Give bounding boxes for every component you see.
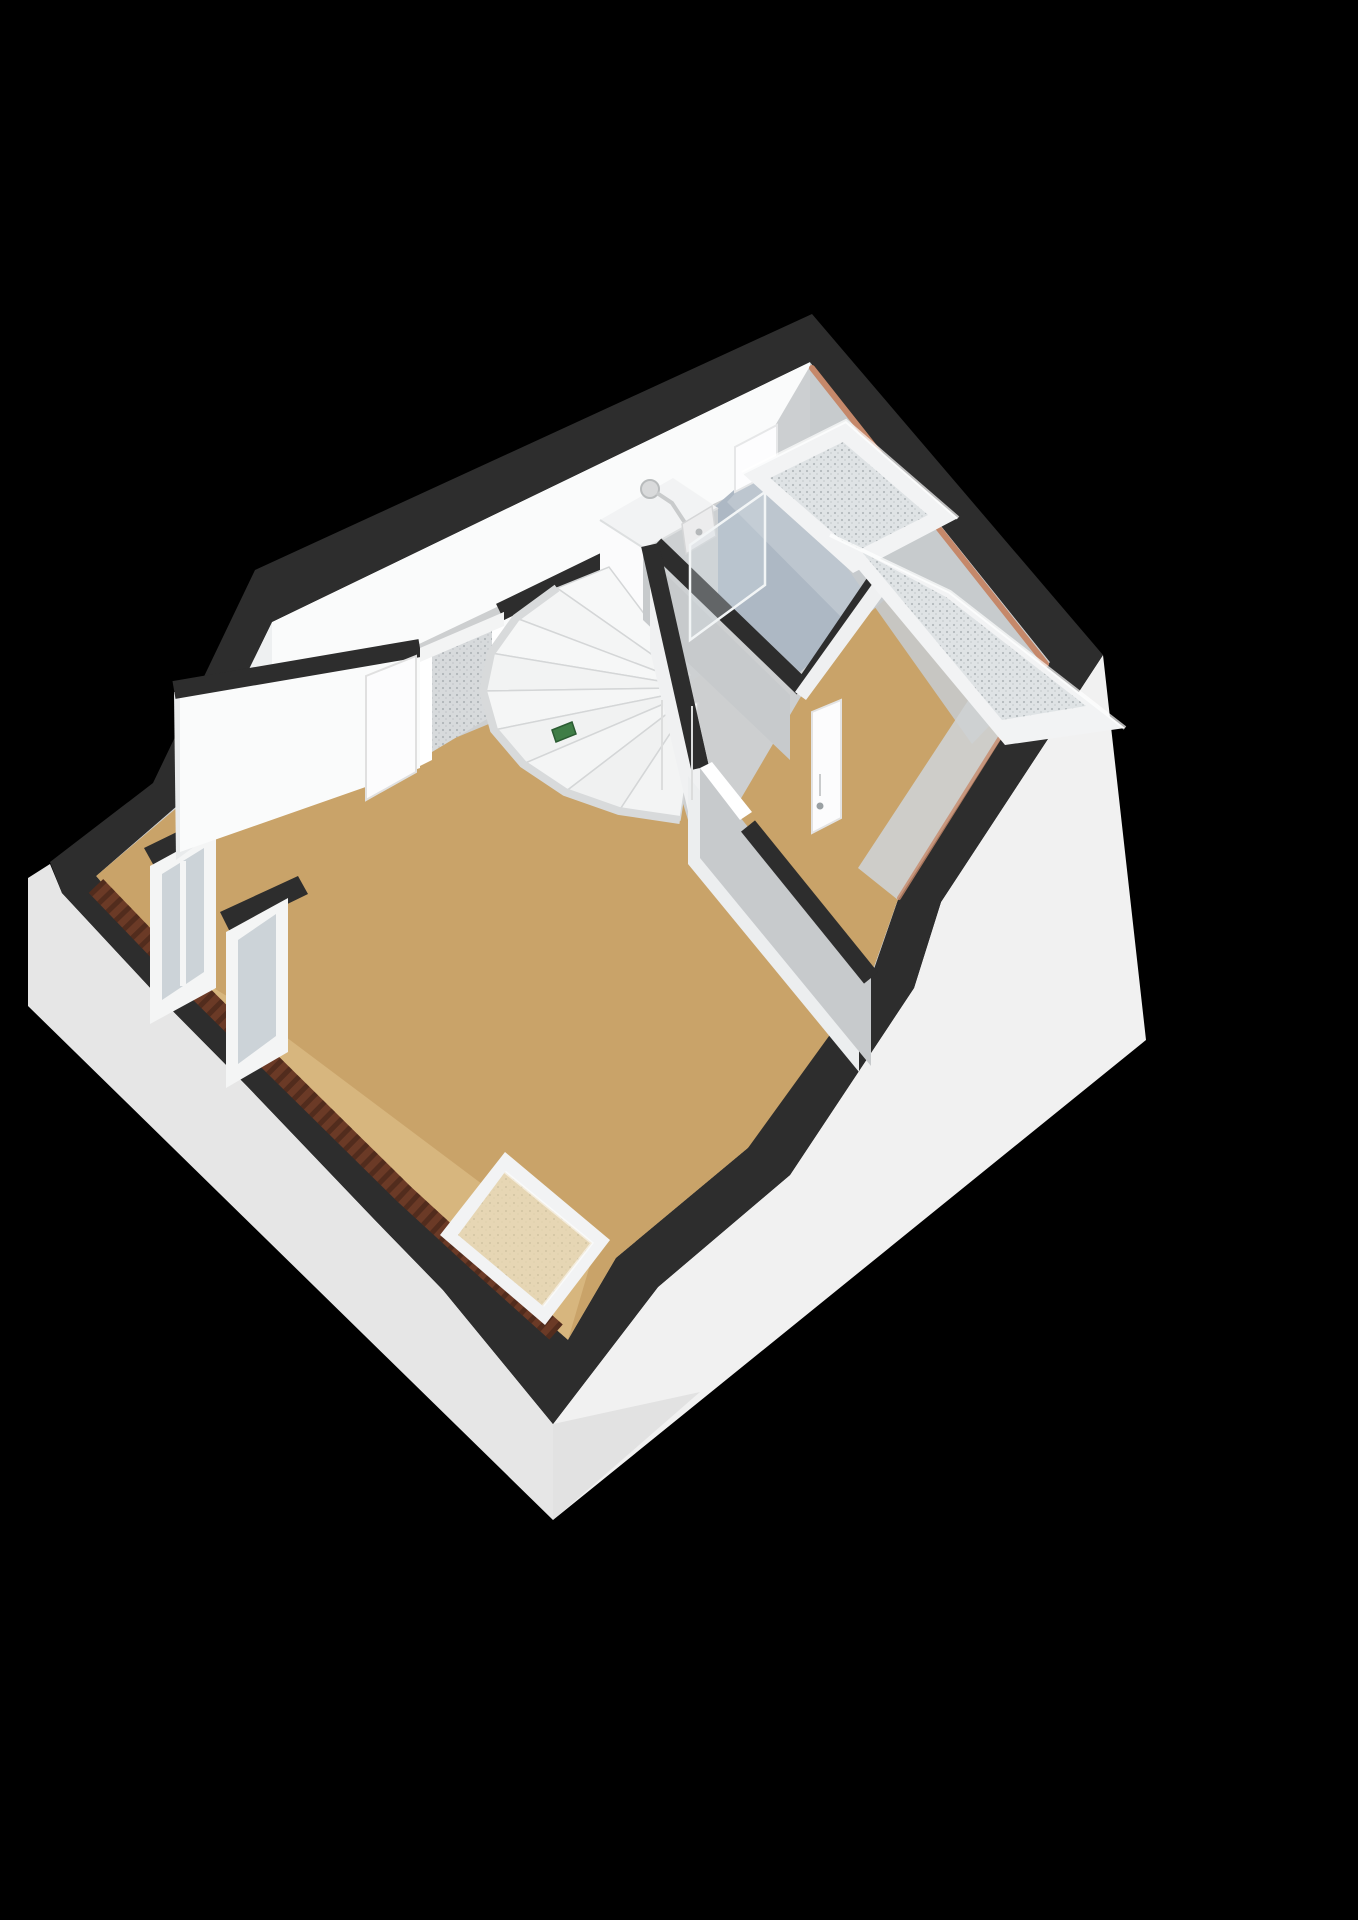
- doorway-jamb-left: [420, 646, 432, 766]
- door-handle: [817, 803, 824, 810]
- floorplan-3d-render: [0, 0, 1358, 1920]
- shower-handle: [696, 529, 703, 536]
- shower-head: [641, 480, 659, 498]
- floorplan-stage: [0, 0, 1358, 1920]
- door-leaf-right-room: [812, 700, 841, 833]
